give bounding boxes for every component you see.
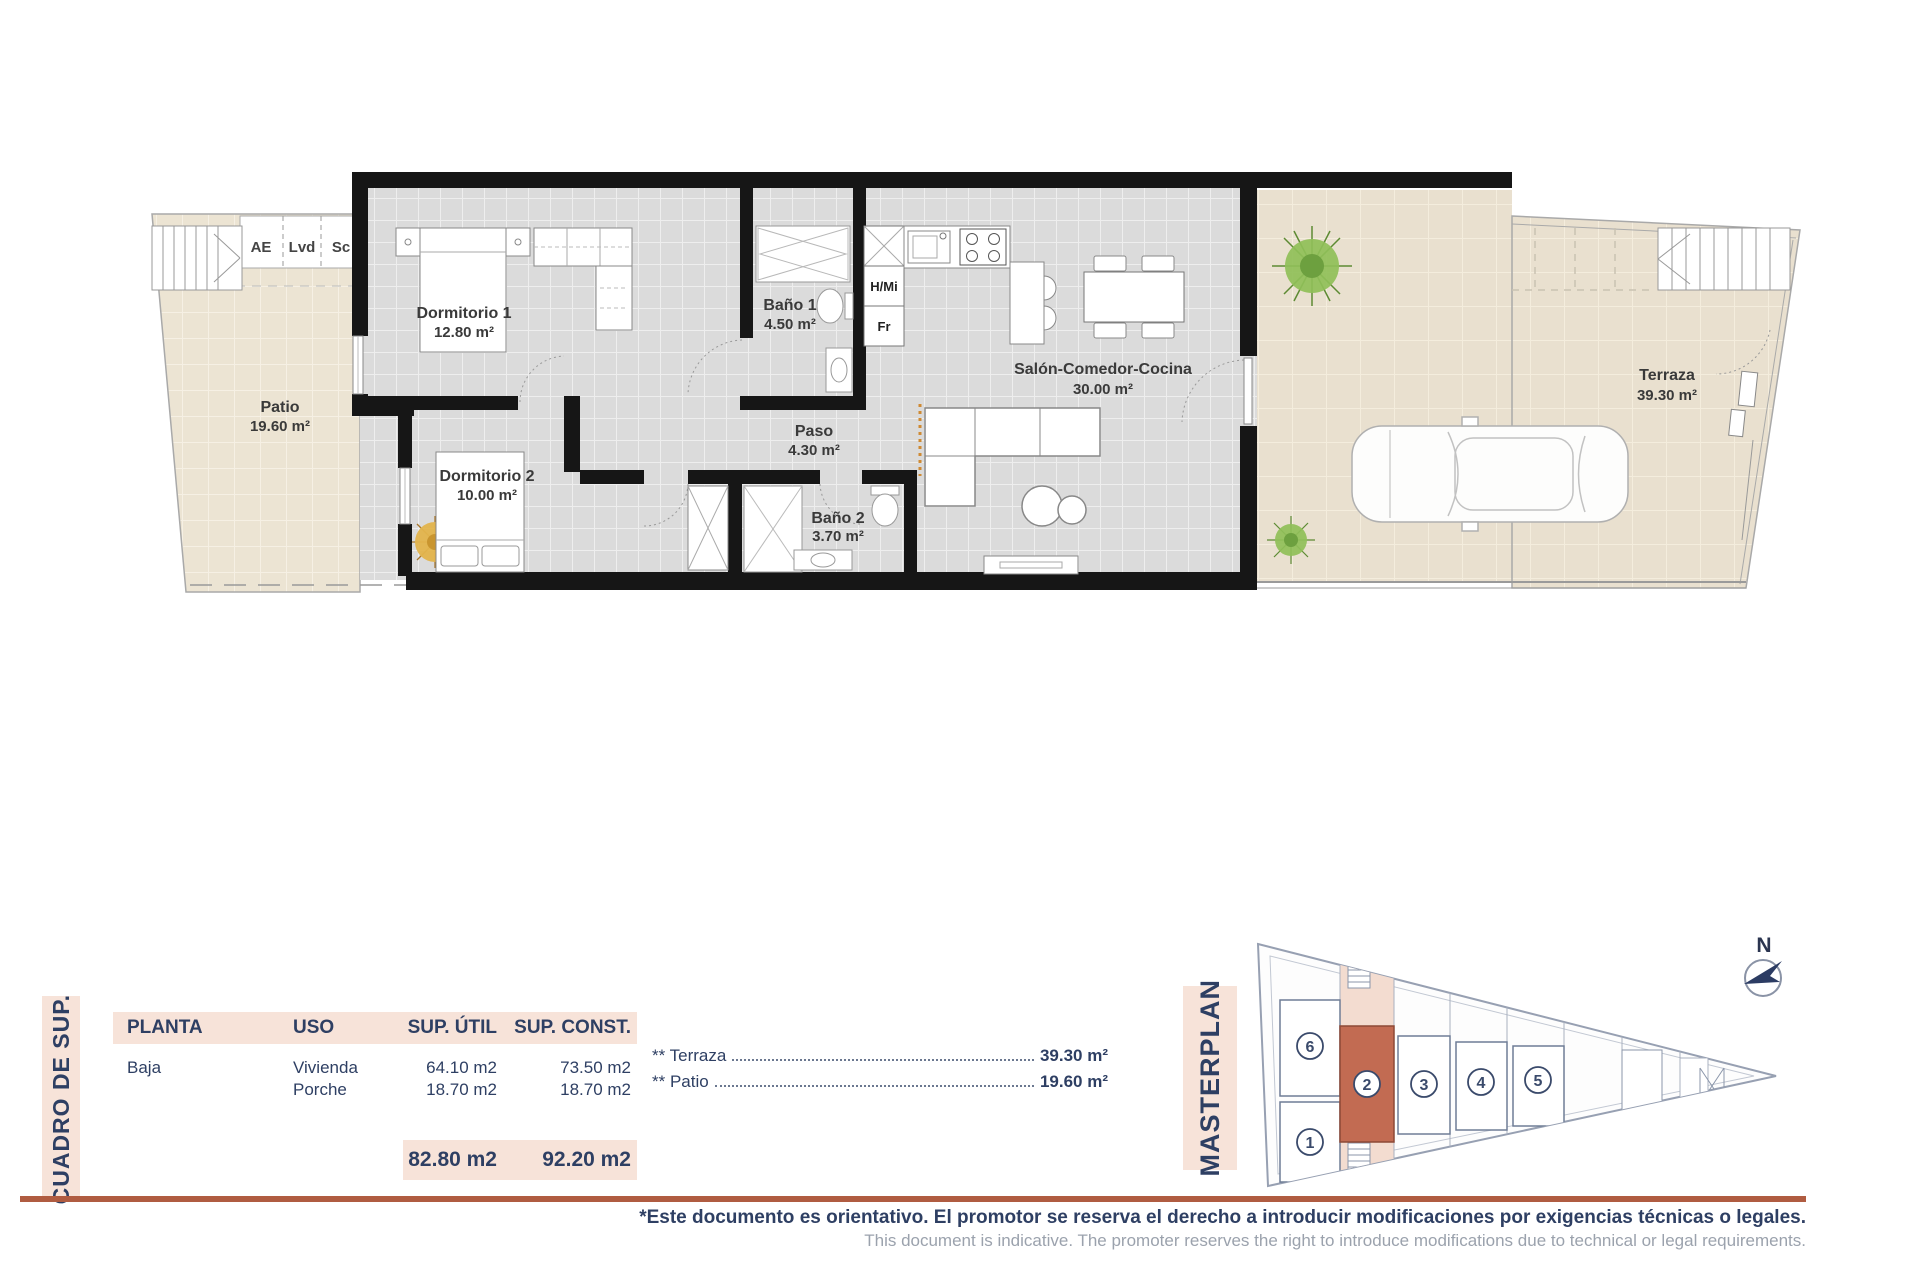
room-patio-name: Patio — [260, 399, 299, 416]
hmi-label: H/Mi — [870, 279, 897, 294]
table-totals-row: 82.80 m2 92.20 m2 — [113, 1140, 637, 1180]
extra-terraza-value: 39.30 m² — [1040, 1046, 1108, 1066]
room-bano1-area: 4.50 m² — [764, 316, 816, 333]
room-dorm1-area: 12.80 m² — [434, 324, 494, 341]
room-dorm2-area: 10.00 m² — [457, 487, 517, 504]
cell-planta — [113, 1080, 279, 1100]
unit-4-label: 4 — [1477, 1075, 1486, 1092]
north-arrow-icon: N — [1744, 934, 1782, 996]
terraza-stairs — [1658, 228, 1790, 290]
col-sup-util: SUP. ÚTIL — [403, 1017, 503, 1039]
total-util: 82.80 m2 — [403, 1148, 503, 1172]
col-sup-const: SUP. CONST. — [503, 1017, 637, 1039]
cell-uso: Porche — [279, 1080, 403, 1100]
disclaimer-spanish: *Este documento es orientativo. El promo… — [20, 1207, 1806, 1229]
summary-side-label: CUADRO DE SUP. — [42, 996, 80, 1202]
unit-1-label: 1 — [1306, 1135, 1315, 1152]
tree-green-large — [1272, 226, 1352, 306]
utility-label-sc: Sc — [332, 239, 350, 256]
dotted-leader — [732, 1058, 1034, 1061]
disclaimer-english: This document is indicative. The promote… — [20, 1231, 1806, 1251]
masterplan: 6 1 2 3 4 5 N — [1180, 918, 1840, 1208]
room-terraza-area: 39.30 m² — [1637, 387, 1697, 404]
cell-util: 64.10 m2 — [403, 1058, 503, 1078]
room-terraza-name: Terraza — [1639, 367, 1695, 384]
tree-green-small — [1267, 516, 1315, 564]
total-const: 92.20 m2 — [503, 1148, 637, 1172]
room-dorm2-name: Dormitorio 2 — [439, 468, 534, 485]
room-bano2-area: 3.70 m² — [812, 528, 864, 545]
utility-label-ae: AE — [251, 239, 272, 256]
utility-label-lvd: Lvd — [289, 239, 316, 256]
unit-5-label: 5 — [1534, 1073, 1543, 1090]
room-paso-name: Paso — [795, 423, 833, 440]
col-uso: USO — [279, 1017, 403, 1039]
room-paso-area: 4.30 m² — [788, 442, 840, 459]
unit-2-label: 2 — [1363, 1077, 1372, 1094]
cell-util: 18.70 m2 — [403, 1080, 503, 1100]
table-row: Porche 18.70 m2 18.70 m2 — [113, 1080, 637, 1100]
unit-6-label: 6 — [1306, 1039, 1315, 1056]
dotted-leader — [715, 1084, 1034, 1087]
extra-terraza-label: ** Terraza — [652, 1046, 726, 1066]
utility-strip: AE Lvd Sc — [240, 216, 360, 268]
room-bano1-name: Baño 1 — [763, 297, 816, 314]
extras-list: ** Terraza 39.30 m² ** Patio 19.60 m² — [652, 1046, 1108, 1098]
cell-planta: Baja — [113, 1058, 279, 1078]
summary-table-header: PLANTA USO SUP. ÚTIL SUP. CONST. — [113, 1012, 637, 1044]
footer-rule — [20, 1196, 1806, 1202]
cell-const: 18.70 m2 — [503, 1080, 637, 1100]
room-salon-area: 30.00 m² — [1073, 381, 1133, 398]
car — [1352, 417, 1628, 531]
north-label: N — [1756, 934, 1771, 957]
table-row: Baja Vivienda 64.10 m2 73.50 m2 — [113, 1058, 637, 1078]
cell-const: 73.50 m2 — [503, 1058, 637, 1078]
masterplan-units — [1280, 938, 1724, 1188]
unit-3-label: 3 — [1420, 1077, 1429, 1094]
room-patio-area: 19.60 m² — [250, 418, 310, 435]
summary-table: PLANTA USO SUP. ÚTIL SUP. CONST. Baja Vi… — [113, 1012, 637, 1180]
list-item: ** Terraza 39.30 m² — [652, 1046, 1108, 1072]
cell-uso: Vivienda — [279, 1058, 403, 1078]
extra-patio-label: ** Patio — [652, 1072, 709, 1092]
appliance-column: H/Mi Fr — [864, 226, 904, 346]
room-bano2-name: Baño 2 — [811, 510, 864, 527]
col-planta: PLANTA — [113, 1017, 279, 1039]
room-salon-name: Salón-Comedor-Cocina — [1014, 361, 1192, 378]
plan-page: AE Lvd Sc — [0, 0, 1920, 1280]
summary-side-label-text: CUADRO DE SUP. — [48, 994, 75, 1204]
fr-label: Fr — [878, 319, 891, 334]
list-item: ** Patio 19.60 m² — [652, 1072, 1108, 1098]
patio-stairs — [152, 226, 242, 290]
room-dorm1-name: Dormitorio 1 — [416, 305, 511, 322]
extra-patio-value: 19.60 m² — [1040, 1072, 1108, 1092]
floor-plan: AE Lvd Sc — [0, 0, 1920, 700]
